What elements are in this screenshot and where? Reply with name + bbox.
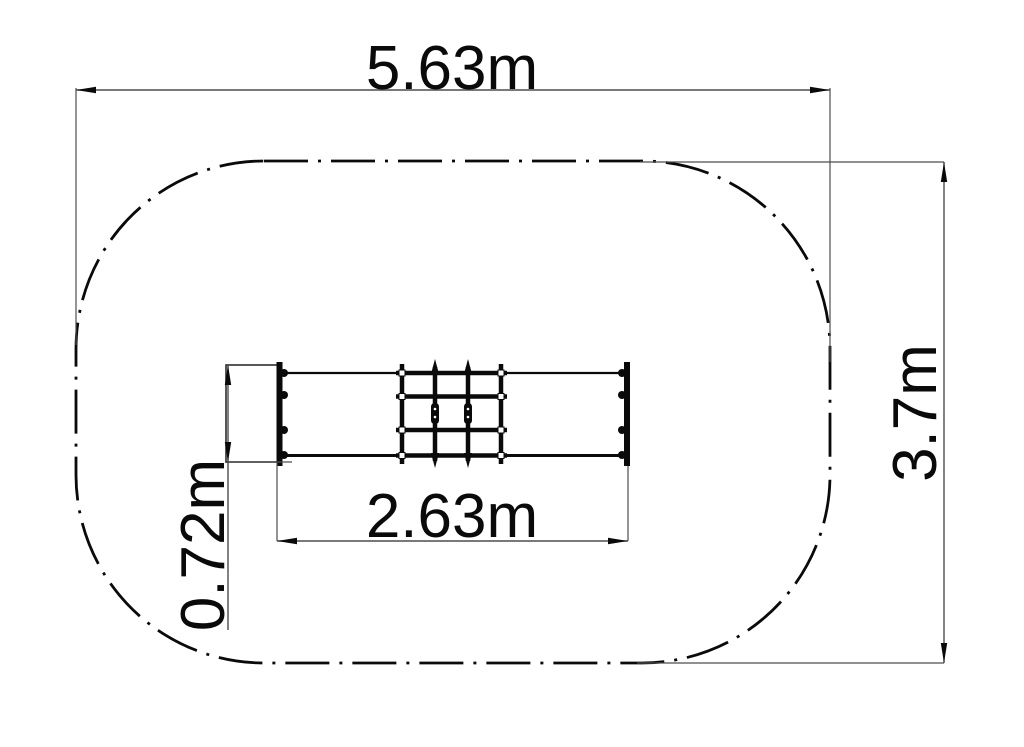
tensioner-dot [467, 408, 470, 411]
equipment-depth-label: 0.72m [169, 459, 238, 631]
zone-width-label: 5.63m [366, 34, 538, 103]
post-nub [618, 391, 626, 399]
equipment-right-post [624, 362, 630, 466]
rope-tensioner [431, 403, 439, 424]
post-nub [280, 426, 288, 434]
rope-lashing [399, 394, 405, 400]
tensioner-dot [434, 408, 437, 411]
rope-end-top [431, 359, 439, 374]
arrow-down-icon [941, 643, 947, 663]
post-nub [618, 426, 626, 434]
rope-lashing [498, 427, 504, 433]
rope-lashing [399, 370, 405, 376]
post-nub [280, 391, 288, 399]
arrow-left-icon [277, 538, 297, 544]
rope-lashing [399, 453, 405, 459]
rope-end-top [464, 359, 472, 374]
equipment-plan [226, 359, 630, 468]
rope-lashing [498, 453, 504, 459]
equipment-left-post [277, 362, 283, 466]
rope-lashing [399, 427, 405, 433]
rope-end-bottom [464, 453, 472, 468]
arrow-right-icon [810, 87, 830, 93]
arrow-left-icon [76, 87, 96, 93]
drawing-canvas: 5.63m 3.7m [0, 0, 1024, 747]
equipment-left-platform [226, 365, 279, 462]
arrow-right-icon [608, 538, 628, 544]
rope-end-bottom [431, 453, 439, 468]
dimension-equipment-length: 2.63m [277, 463, 628, 551]
tensioner-dot [434, 416, 437, 419]
zone-height-label: 3.7m [881, 344, 950, 482]
equipment-length-label: 2.63m [366, 482, 538, 551]
tensioner-dot [467, 416, 470, 419]
drawing-page: 5.63m 3.7m [0, 0, 1024, 747]
dimension-equipment-depth: 0.72m [169, 365, 292, 631]
arrow-up-icon [941, 162, 947, 182]
rope-lashing [498, 370, 504, 376]
rope-lashing [498, 394, 504, 400]
rope-tensioner [464, 403, 472, 424]
dimension-zone-width: 5.63m [76, 34, 830, 362]
